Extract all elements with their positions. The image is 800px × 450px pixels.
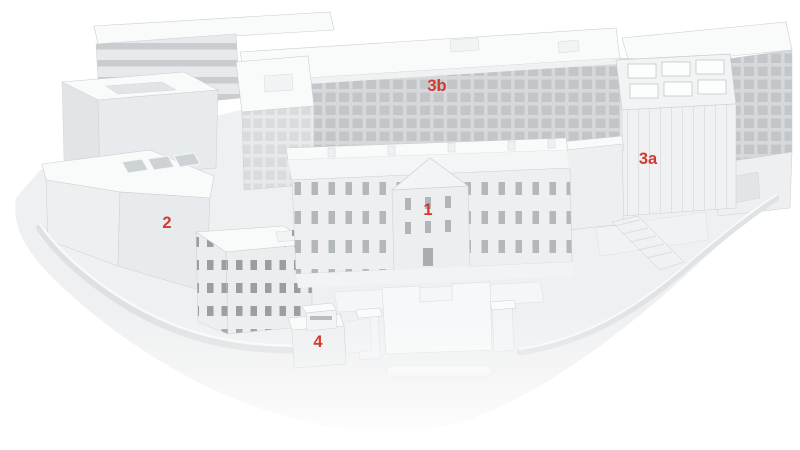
- bottom-fade: [0, 300, 800, 450]
- label-1: 1: [423, 201, 432, 219]
- label-2: 2: [162, 214, 171, 232]
- 3b-roofbox-1: [450, 38, 479, 52]
- site-model-canvas: 3b 3a 2 1 4: [0, 0, 800, 450]
- mid-tower-roofbox: [264, 74, 293, 92]
- label-4: 4: [313, 333, 323, 351]
- 3b-roofbox-2: [558, 40, 579, 53]
- 3a-wing-face: [566, 144, 624, 230]
- site-model-figure: 3b 3a 2 1 4: [0, 0, 800, 450]
- label-3b: 3b: [427, 77, 446, 95]
- label-3a: 3a: [639, 150, 658, 168]
